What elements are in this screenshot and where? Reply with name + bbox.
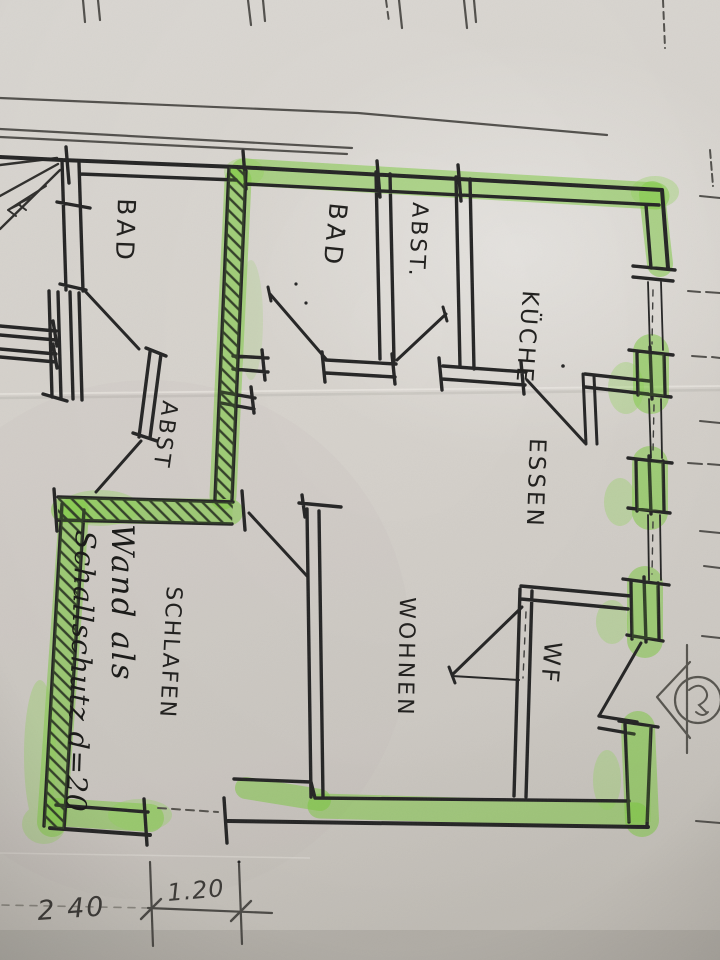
floor-plan-photo: BAD BAD ABST. KÜCHE ESSEN ABST SCHLAFEN … [0, 0, 720, 960]
photo-overlays [0, 0, 720, 960]
